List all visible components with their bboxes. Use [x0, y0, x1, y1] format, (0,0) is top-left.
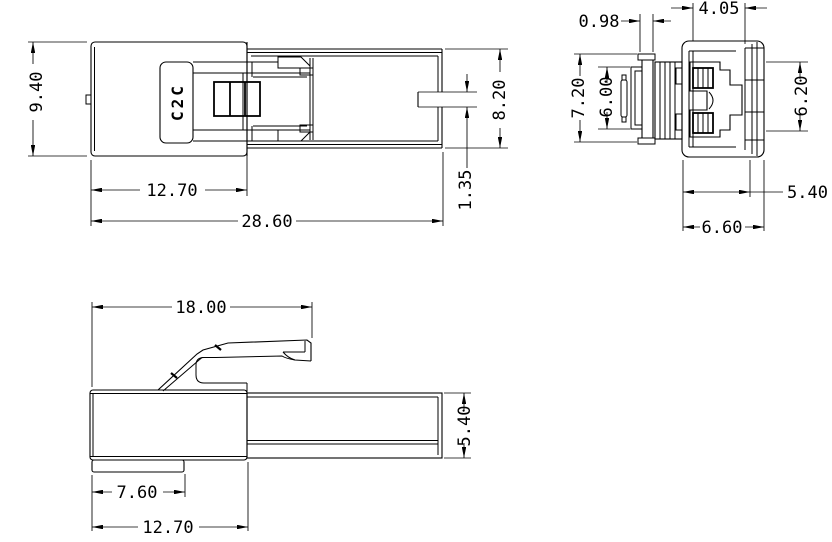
dim-top-overall-height: 9.40 — [27, 72, 47, 113]
dim-side-latch-length: 18.00 — [175, 298, 226, 318]
plug-side-outline — [247, 393, 442, 458]
end-view: 0.98 4.05 7.20 6.00 6.20 — [569, 0, 828, 238]
dim-top-overall-length: 28.60 — [241, 212, 292, 232]
connector-dimension-drawing: C2C 9.40 — [0, 0, 832, 542]
dim-end-cavity-width: 4.05 — [699, 0, 740, 19]
dim-end-opening-height: 6.20 — [792, 76, 812, 117]
side-tab — [86, 95, 91, 104]
housing-side-outline — [90, 390, 247, 460]
bottom-rail — [92, 460, 184, 472]
dim-top-slot-height: 1.35 — [456, 170, 476, 211]
mating-flange — [655, 62, 682, 139]
side-view: 18.00 5.40 7.60 12.70 — [90, 298, 475, 538]
dim-side-plug-height: 5.40 — [455, 406, 475, 447]
dim-end-rib-width: 0.98 — [579, 12, 620, 32]
side-view-geometry — [90, 340, 442, 472]
end-view-geometry — [621, 41, 764, 157]
dim-top-housing-width: 12.70 — [146, 181, 197, 201]
dim-side-housing-length: 12.70 — [142, 518, 193, 538]
top-view-geometry: C2C — [86, 42, 442, 156]
latch-beam-end — [621, 80, 627, 117]
cavity-marking: C2C — [168, 83, 187, 121]
dim-top-shroud-height: 8.20 — [490, 80, 510, 121]
dim-end-overall-width: 6.60 — [702, 218, 743, 238]
dim-end-flange-height: 7.20 — [569, 78, 589, 119]
top-view: C2C 9.40 — [27, 42, 510, 232]
rib-bottom-flange — [638, 138, 655, 144]
dim-end-inner-height: 6.00 — [597, 77, 617, 118]
dim-end-body-width: 5.40 — [787, 183, 828, 203]
side-view-dimensions: 18.00 5.40 7.60 12.70 — [92, 298, 475, 538]
dim-side-rail-length: 7.60 — [117, 483, 158, 503]
engineering-drawing-canvas: C2C 9.40 — [0, 0, 832, 542]
rib-top-flange — [638, 54, 655, 60]
latch-hinge-curve — [196, 358, 247, 384]
terminal-box — [214, 82, 260, 116]
inner-rib-top — [278, 57, 310, 68]
